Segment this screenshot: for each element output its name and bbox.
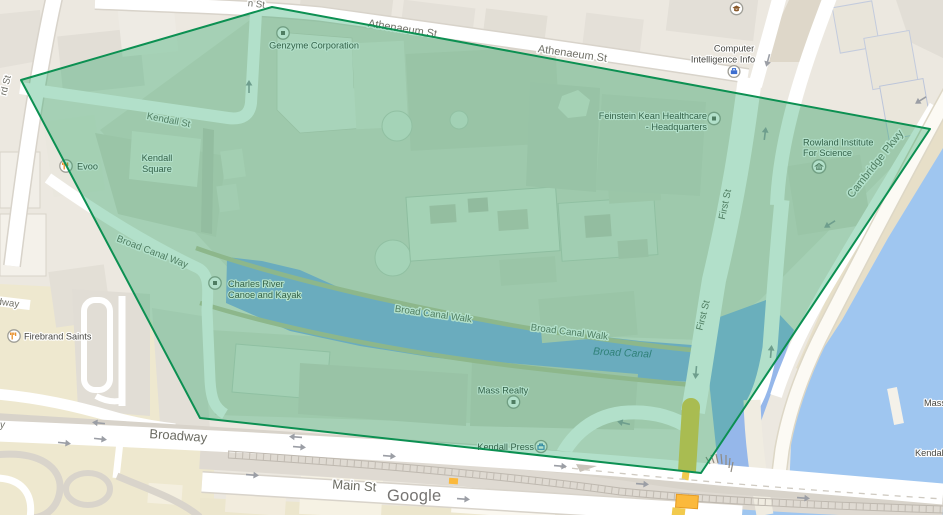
- svg-text:Firebrand Saints: Firebrand Saints: [24, 332, 92, 342]
- svg-text:Kendal: Kendal: [915, 448, 943, 458]
- svg-text:Computer: Computer: [714, 44, 754, 54]
- svg-text:Intelligence Info: Intelligence Info: [691, 55, 755, 65]
- svg-text:Main St: Main St: [332, 476, 377, 494]
- svg-text:Google: Google: [387, 487, 441, 505]
- svg-text:Mass: Mass: [924, 398, 943, 408]
